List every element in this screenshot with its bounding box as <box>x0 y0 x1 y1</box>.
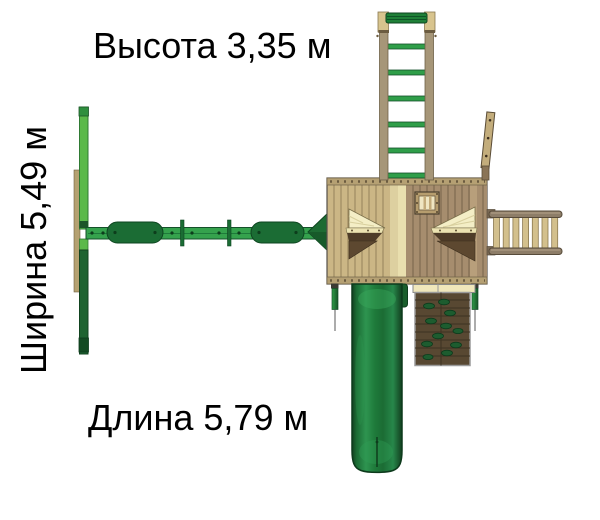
flag-plank <box>481 112 495 169</box>
playhouse-roof <box>327 178 487 284</box>
access-ladder-rungs <box>494 218 558 249</box>
width-dimension-label: Ширина 5,49 м <box>13 126 55 374</box>
tube-slide <box>352 284 408 472</box>
diagram-canvas: Высота 3,35 м Ширина 5,49 м Длина 5,79 м <box>0 0 600 520</box>
length-dimension-label: Длина 5,79 м <box>88 397 308 439</box>
roof-window <box>415 192 439 214</box>
ladder-rungs <box>388 44 426 178</box>
swing-beam <box>86 220 330 246</box>
ladder-top-bar <box>386 13 427 23</box>
vertical-ladder <box>376 12 436 180</box>
playground-top-view-illustration <box>0 0 600 520</box>
height-dimension-label: Высота 3,35 м <box>93 25 331 67</box>
climbing-wall <box>413 285 475 366</box>
flag-plank-base <box>482 166 489 180</box>
access-ladder <box>487 210 562 256</box>
hanging-post-left <box>331 284 339 332</box>
